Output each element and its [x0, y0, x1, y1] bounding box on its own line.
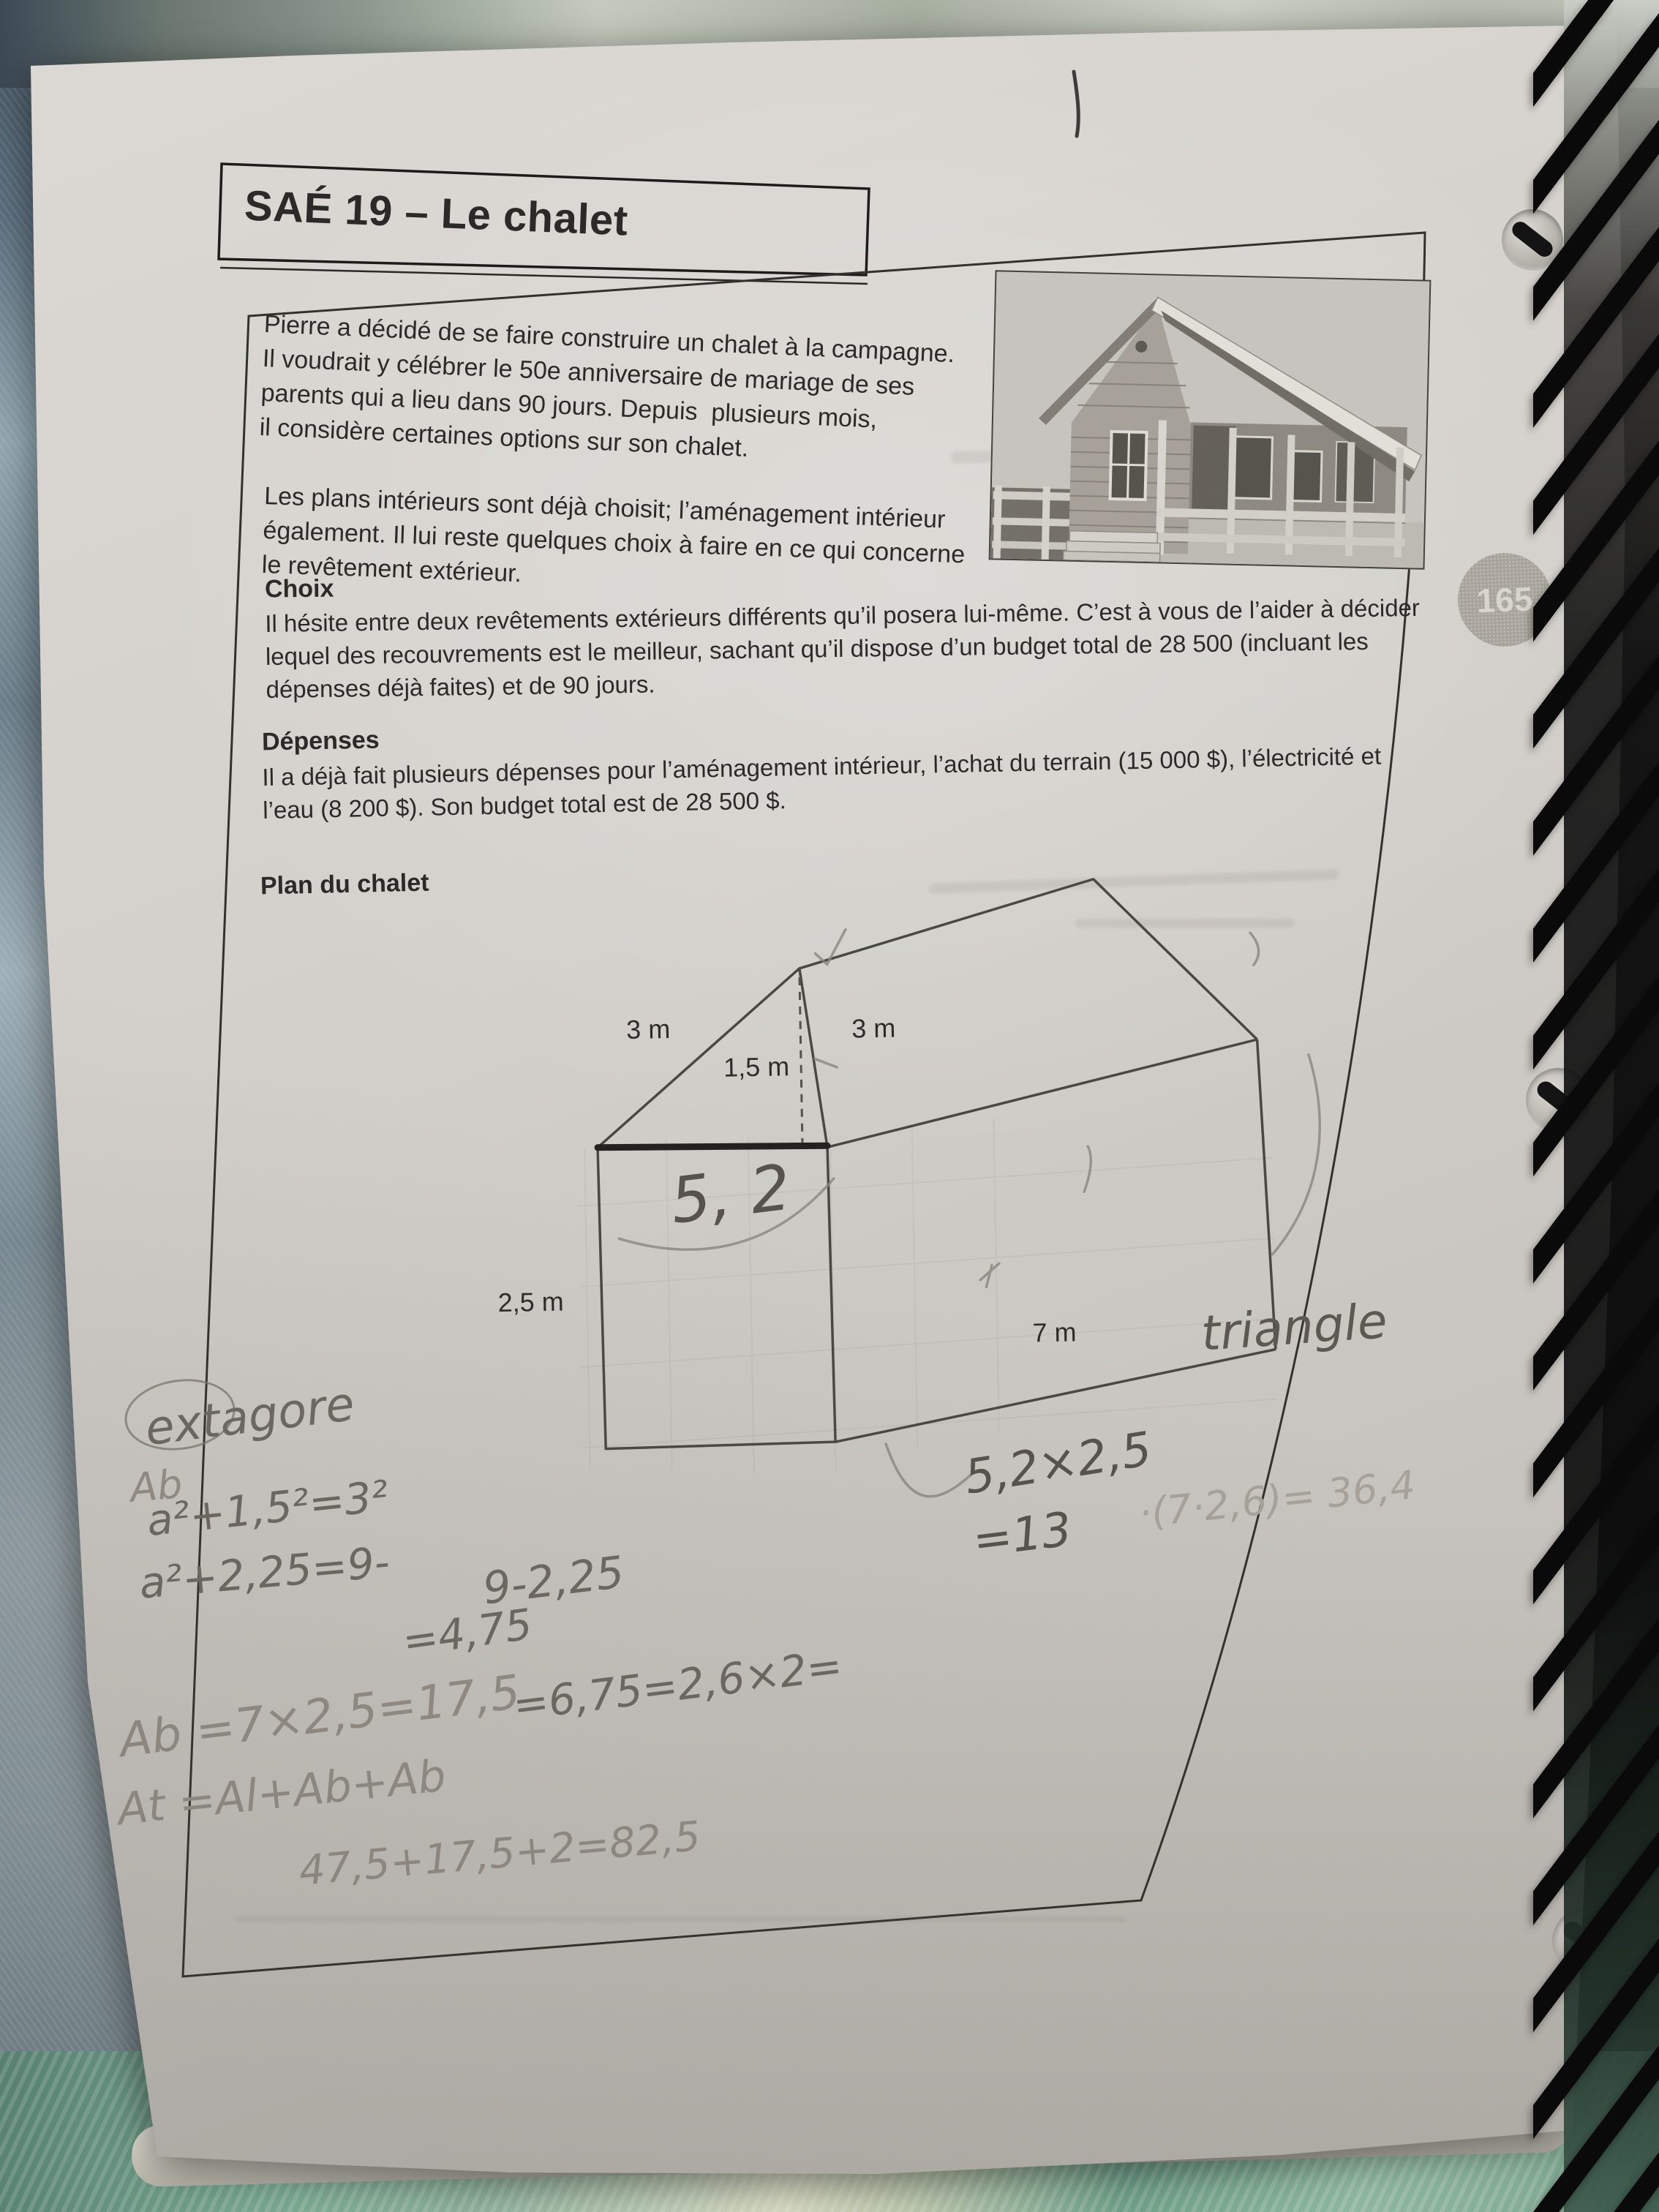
chalet-plan-diagram: 3 m 3 m 1,5 m 2,5 m 7 m 5, 2	[448, 840, 1483, 1530]
choix-paragraph: Il hésite entre deux revêtements extérie…	[265, 591, 1421, 706]
wall-height-label: 2,5 m	[497, 1287, 564, 1318]
plan-heading: Plan du chalet	[260, 869, 429, 901]
choix-heading: Choix	[265, 575, 334, 604]
chalet-photo	[989, 270, 1432, 569]
roof-left-label: 3 m	[626, 1014, 671, 1045]
depenses-heading: Dépenses	[262, 726, 380, 757]
ridge-height-label: 1,5 m	[723, 1051, 790, 1083]
notebook-page: SAÉ 19 – Le chalet Pierre a décidé de se…	[0, 0, 1659, 2212]
chalet-photo-illustration	[990, 271, 1430, 568]
notebook-page-wrap: SAÉ 19 – Le chalet Pierre a décidé de se…	[0, 0, 1659, 2212]
spiral-binding	[1533, 0, 1659, 2212]
ruled-line-bleed	[234, 1916, 1126, 1922]
length-label: 7 m	[1032, 1317, 1077, 1347]
roof-right-label: 3 m	[851, 1013, 896, 1044]
pencil-width-annotation: 5, 2	[666, 1151, 794, 1238]
